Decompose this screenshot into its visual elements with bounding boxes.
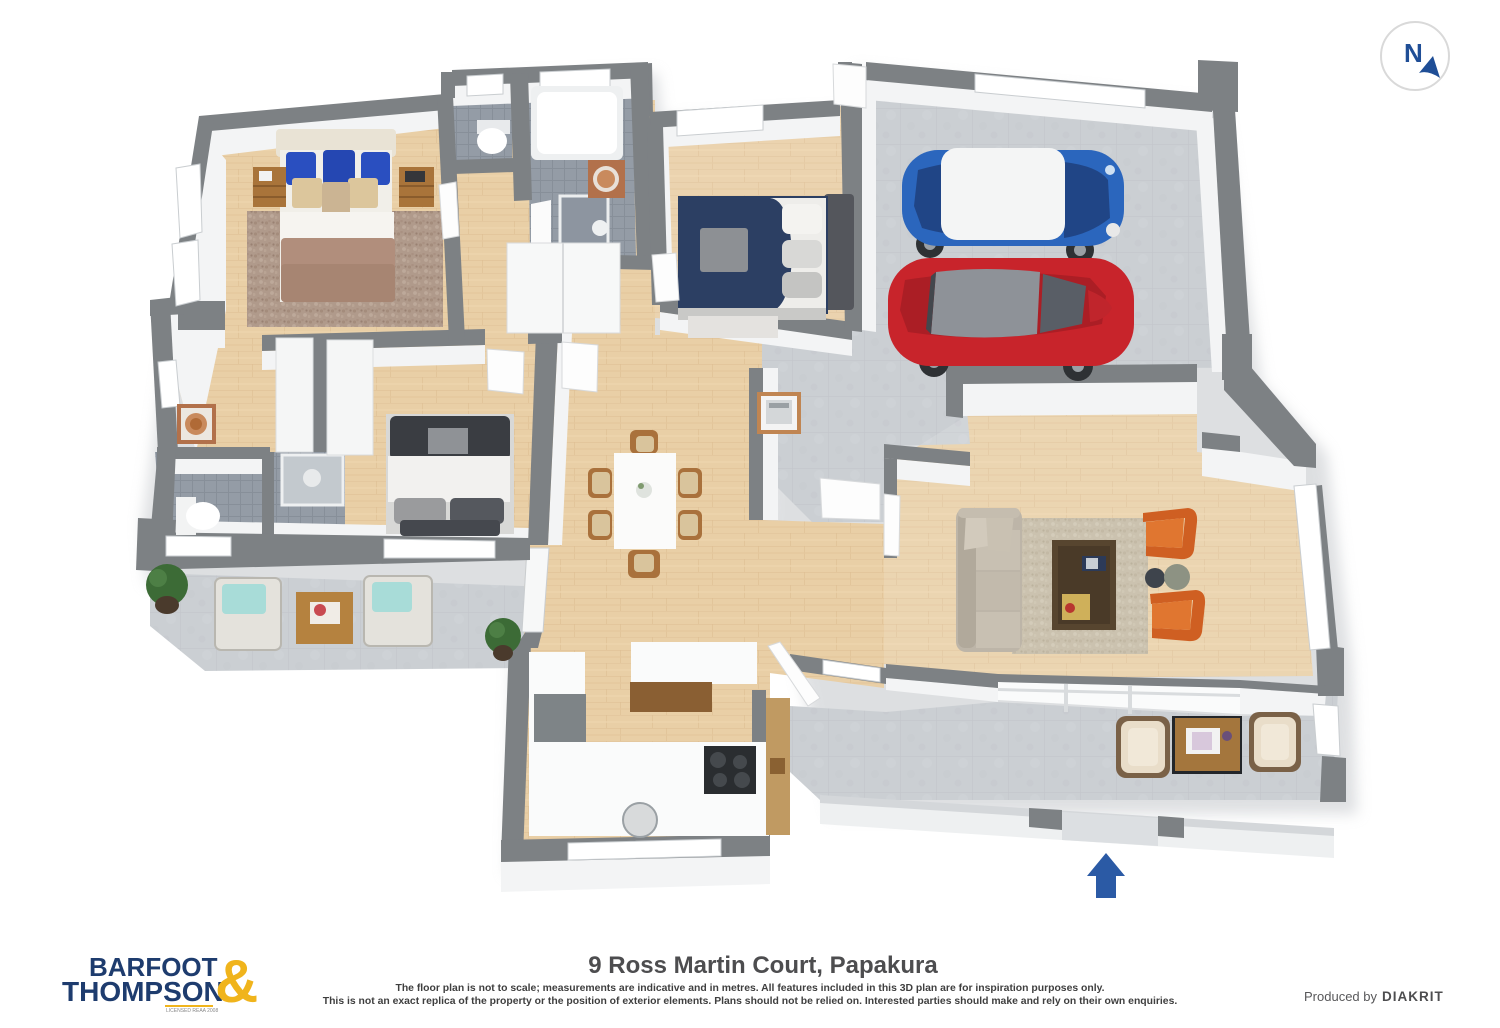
svg-text:Produced by: Produced by: [1304, 989, 1377, 1004]
svg-text:9 Ross Martin Court, Papakura: 9 Ross Martin Court, Papakura: [588, 952, 938, 979]
svg-text:The floor plan is not to scale: The floor plan is not to scale; measurem…: [395, 983, 1104, 994]
svg-text:DIAKRIT: DIAKRIT: [1382, 989, 1444, 1004]
svg-text:THOMPSON: THOMPSON: [62, 976, 224, 1007]
svg-text:LICENSED REAA 2008: LICENSED REAA 2008: [166, 1008, 218, 1014]
svg-text:N: N: [1404, 38, 1423, 68]
svg-text:This is not an exact replica o: This is not an exact replica of the prop…: [323, 996, 1178, 1007]
svg-text:&: &: [215, 948, 258, 1015]
